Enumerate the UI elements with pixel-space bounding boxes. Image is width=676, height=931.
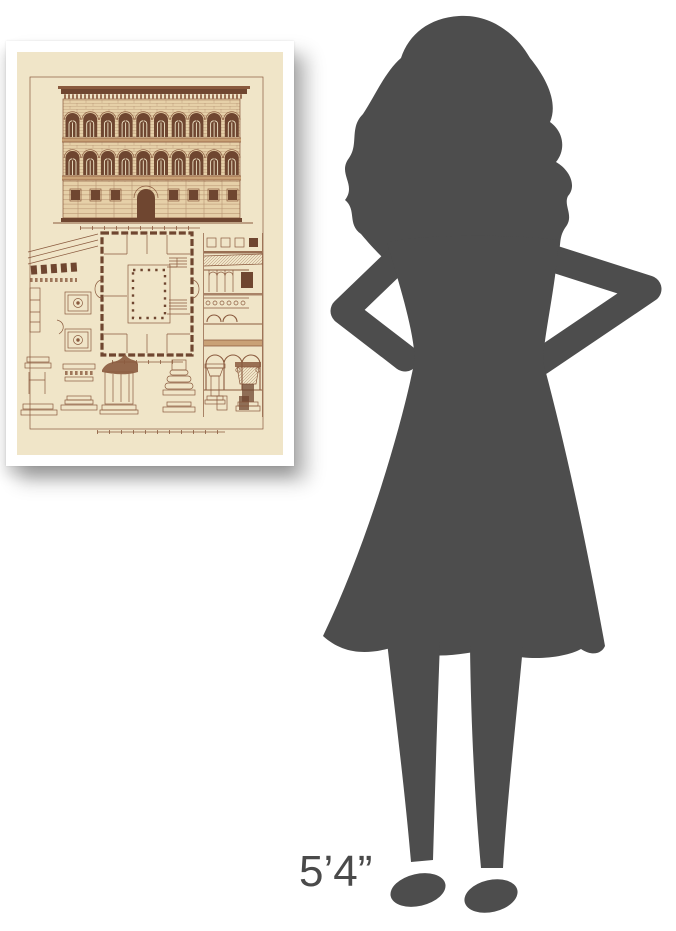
- right-arm: [540, 258, 648, 362]
- size-comparison-canvas: 5’4”: [0, 0, 676, 931]
- right-leg: [470, 646, 523, 868]
- framed-print: [6, 41, 294, 466]
- left-leg: [387, 642, 440, 862]
- cornice-details-drawing: [28, 234, 98, 351]
- floor-plan-drawing: [95, 233, 199, 362]
- molding-details-drawing: [21, 354, 261, 432]
- facade-elevation-drawing: [53, 86, 253, 228]
- rosette-coffer-panels: [65, 292, 91, 351]
- courtyard-column-dots: [133, 270, 165, 318]
- print-paper: [17, 52, 283, 455]
- left-arm: [344, 258, 405, 358]
- section-drawing: [204, 233, 264, 417]
- left-foot: [387, 868, 449, 912]
- right-foot: [461, 874, 521, 917]
- height-label: 5’4”: [299, 850, 372, 894]
- architectural-plate-drawing: [17, 52, 283, 455]
- entrance-door: [137, 189, 155, 218]
- silhouette-shape: [323, 16, 648, 918]
- woman-silhouette: [315, 12, 665, 927]
- dress-skirt: [323, 358, 605, 658]
- modillion-row: [31, 262, 78, 274]
